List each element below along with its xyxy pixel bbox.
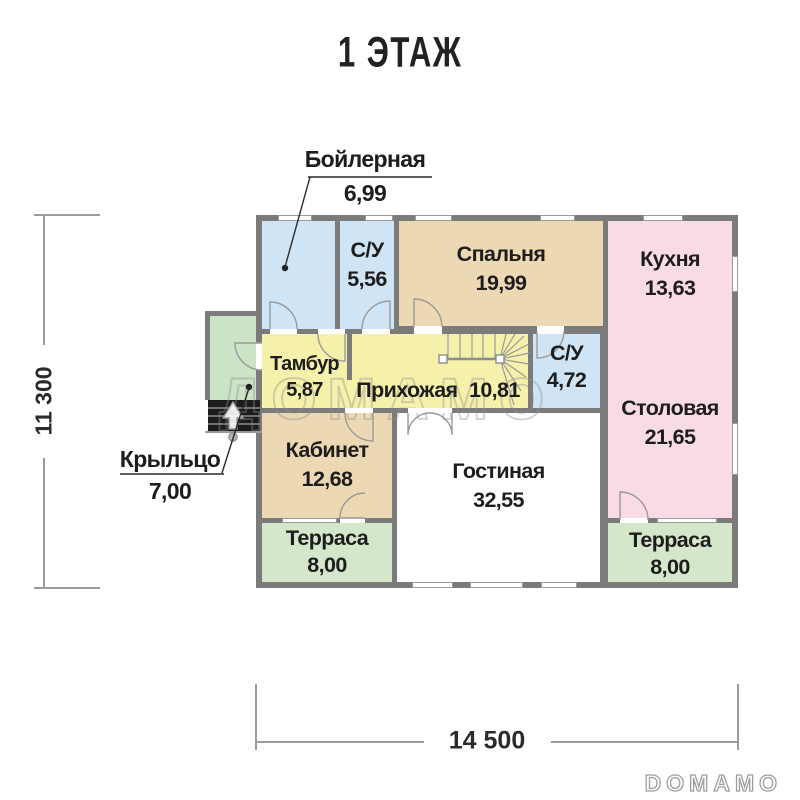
door-gap [537, 326, 564, 334]
window [657, 518, 717, 523]
label-tambour: Тамбур 5,87 [262, 351, 347, 403]
label-livingroom: Гостиная 32,55 [397, 457, 600, 515]
label-terrace-right: Терраса 8,00 [608, 527, 732, 581]
label-su-top: С/У 5,56 [335, 236, 399, 294]
door-gap [345, 408, 373, 413]
label-office: Кабинет 12,68 [262, 436, 392, 494]
label-bedroom: Спальня 19,99 [399, 240, 603, 298]
label-hallway: Прихожая 10,81 [350, 376, 526, 407]
door-gap [340, 518, 365, 523]
window [643, 215, 683, 221]
dimension-height: 11 300 [31, 366, 58, 435]
floor-plan-page: 1 ЭТАЖ ДОМАМО [0, 0, 800, 800]
door-gap [362, 329, 390, 334]
window [365, 215, 393, 221]
brand-logo: DOMAMO [645, 770, 782, 797]
label-dining: Столовая 21,65 [608, 394, 732, 452]
window [278, 215, 312, 221]
door-gap [270, 329, 297, 334]
window [732, 423, 738, 475]
door-gap [620, 518, 648, 523]
label-kitchen: Кухня 13,63 [608, 245, 732, 303]
label-su-mid: С/У 4,72 [533, 340, 600, 394]
window [540, 215, 575, 221]
label-porch: Крыльцо [118, 446, 222, 473]
door-gap [414, 326, 442, 334]
window [415, 215, 452, 221]
room-boiler [262, 221, 335, 329]
window [470, 582, 523, 588]
door-gap [318, 329, 345, 334]
window [412, 582, 453, 588]
window [732, 256, 738, 292]
door-gap [408, 408, 452, 413]
label-porch-area: 7,00 [140, 478, 200, 505]
dimension-width: 14 500 [449, 727, 525, 756]
page-title: 1 ЭТАЖ [0, 28, 800, 76]
label-boiler-area: 6,99 [325, 180, 405, 207]
label-boiler: Бойлерная [295, 146, 435, 173]
window [541, 582, 577, 588]
window [282, 518, 337, 523]
label-terrace-left: Терраса 8,00 [262, 525, 392, 579]
